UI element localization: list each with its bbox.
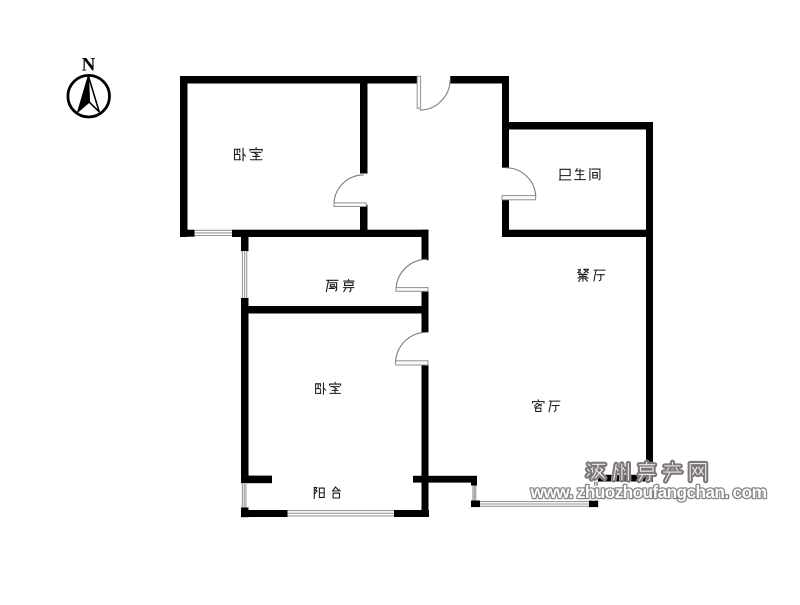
svg-text:N: N bbox=[82, 55, 96, 76]
svg-text:www. zhuozhoufangchan. com: www. zhuozhoufangchan. com bbox=[530, 482, 767, 502]
